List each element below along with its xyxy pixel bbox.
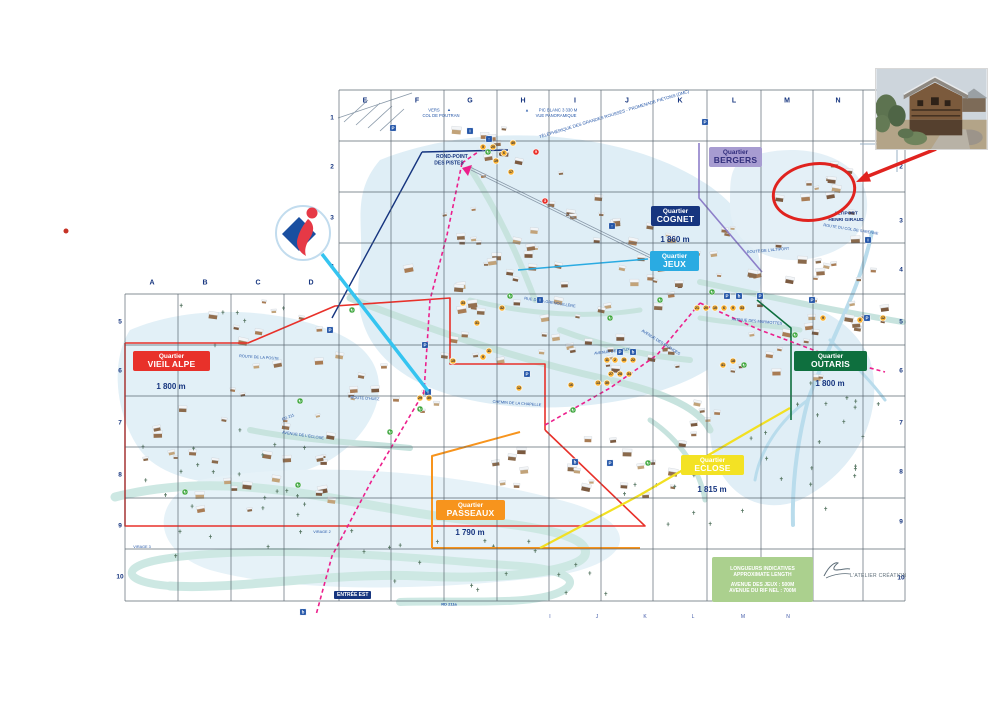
grid-letter: K xyxy=(677,98,682,105)
parking-icon: P xyxy=(757,293,763,299)
poi-marker: 13 xyxy=(595,380,601,386)
grid-number: 8 xyxy=(899,469,903,476)
recycling-icon: ↻ xyxy=(507,293,513,299)
grid-letter: J xyxy=(625,98,629,105)
map-text: b xyxy=(632,350,635,355)
map-text: P xyxy=(618,350,621,355)
grid-number: 6 xyxy=(118,368,122,375)
map-text: P xyxy=(608,461,611,466)
map-text: 32 xyxy=(500,306,504,310)
credit-bird-icon xyxy=(822,560,852,582)
parking-icon: P xyxy=(724,293,730,299)
bus-icon: b xyxy=(300,609,306,615)
place-label: VUE PANORAMIQUE xyxy=(536,113,577,118)
map-text: 12 xyxy=(517,386,521,390)
map-text: 11 xyxy=(487,349,491,353)
recycling-icon: ↻ xyxy=(657,297,663,303)
grid-number: 3 xyxy=(330,215,334,222)
grid-letter: N xyxy=(786,614,790,620)
place-label: PIC BLANC 3 330 M xyxy=(539,108,578,113)
poi-marker: 9 xyxy=(820,315,826,321)
place-label: VERS xyxy=(428,108,440,113)
poi-marker: 17 xyxy=(508,169,514,175)
quartier-name: COGNET xyxy=(653,215,698,224)
parking-icon: P xyxy=(702,119,708,125)
poi-marker: 5 xyxy=(480,144,486,150)
recycling-icon: ↻ xyxy=(792,332,798,338)
map-text: 21 xyxy=(695,306,699,310)
poi-marker: 28 xyxy=(617,371,623,377)
quartier-name: ECLOSE xyxy=(683,464,742,473)
quartier-label-bergers: QuartierBERGERS xyxy=(709,147,762,167)
map-text: 11 xyxy=(605,358,609,362)
poi-marker: 12 xyxy=(516,385,522,391)
parking-icon: P xyxy=(390,125,396,131)
grid-number: 7 xyxy=(899,420,903,427)
map-text: P xyxy=(703,120,706,125)
poi-marker: 30 xyxy=(426,395,432,401)
parking-icon: P xyxy=(524,371,530,377)
quartier-label-passeaux: QuartierPASSEAUX xyxy=(436,500,505,520)
quartier-label-vieil-alpe: QuartierVIEIL ALPE xyxy=(133,351,210,371)
quartier-altitude-eclose: 1 815 m xyxy=(672,485,752,494)
poi-marker: 31 xyxy=(474,320,480,326)
quartier-name: OUTARIS xyxy=(796,360,865,369)
grid-number: 10 xyxy=(116,574,124,581)
poi-marker: 18 xyxy=(730,358,736,364)
poi-marker: 9 xyxy=(730,305,736,311)
place-label: ▲ xyxy=(447,107,451,112)
info-icon: i xyxy=(865,237,871,243)
map-text: 2 xyxy=(614,358,616,362)
grid-number: 9 xyxy=(118,523,122,530)
parking-icon: P xyxy=(617,349,623,355)
poi-marker: 9 xyxy=(480,354,486,360)
map-text: 9 xyxy=(822,316,824,320)
place-label: ▲ xyxy=(525,108,529,113)
grid-letter: J xyxy=(596,614,599,620)
grid-letter: M xyxy=(784,98,790,105)
recycling-icon: ↻ xyxy=(387,429,393,435)
map-text: 27 xyxy=(609,372,613,376)
recycling-icon: ↻ xyxy=(570,407,576,413)
grid-letter: I xyxy=(574,98,576,105)
map-text: 15 xyxy=(451,359,455,363)
map-text: P xyxy=(525,372,528,377)
poi-marker: 2 xyxy=(612,357,618,363)
map-text: 29 xyxy=(418,396,422,400)
poi-marker: 20 xyxy=(490,144,496,150)
poi-marker: 34 xyxy=(626,371,632,377)
poi-marker: 32 xyxy=(499,305,505,311)
resort-map-page: EFGHIJKLMNABCDIJKLMN12345678910234567891… xyxy=(0,0,1000,707)
recycling-icon: ↻ xyxy=(645,460,651,466)
grid-letter: F xyxy=(415,98,420,105)
map-text: b xyxy=(302,610,305,615)
map-text: 33 xyxy=(461,301,465,305)
grid-number: 5 xyxy=(118,319,122,326)
map-text: 22 xyxy=(631,358,635,362)
bus-icon: b xyxy=(630,349,636,355)
map-text: 31 xyxy=(475,321,479,325)
map-text: 3 xyxy=(544,199,546,203)
chalet-photo xyxy=(875,68,988,150)
quartier-name: BERGERS xyxy=(711,156,760,165)
map-text: 41 xyxy=(721,363,725,367)
poi-marker: 33 xyxy=(739,305,745,311)
map-text: P xyxy=(391,126,394,131)
grid-letter: M xyxy=(741,614,745,620)
grid-letter: I xyxy=(549,614,550,620)
poi-marker: 22 xyxy=(630,357,636,363)
grid-number: 8 xyxy=(118,472,122,479)
map-text: 10 xyxy=(713,306,717,310)
grid-letter: D xyxy=(308,280,313,287)
grid-number: 3 xyxy=(899,218,903,225)
map-text: P xyxy=(328,328,331,333)
poi-marker: 12 xyxy=(880,315,886,321)
grid-letter: L xyxy=(692,614,695,620)
bus-icon: b xyxy=(572,459,578,465)
poi-marker: 20 xyxy=(703,305,709,311)
place-label: COL DE POUTRAN xyxy=(422,113,459,118)
recycling-icon: ↻ xyxy=(607,315,613,321)
place-label: ROND-POINT xyxy=(436,154,468,160)
grid-number: 2 xyxy=(330,164,334,171)
place-label: DES PISTES xyxy=(434,161,464,167)
recycling-icon: ↻ xyxy=(417,406,423,412)
map-text: 13 xyxy=(596,381,600,385)
grid-number: 9 xyxy=(899,519,903,526)
map-text: 9 xyxy=(535,150,537,154)
place-label: HENRI GIRAUD xyxy=(828,217,864,223)
parking-icon: P xyxy=(809,297,815,303)
place-label: VIRAGE 3 xyxy=(133,545,151,549)
legend-line: AVENUE DU RIF NEL : 700M xyxy=(712,588,813,594)
poi-marker: 40 xyxy=(510,140,516,146)
map-text: P xyxy=(758,294,761,299)
recycling-icon: ↻ xyxy=(741,362,747,368)
credit-text: L'ATELIER CRÉATION xyxy=(850,573,906,579)
map-text: ↑ xyxy=(611,224,613,229)
grid-letter: B xyxy=(202,280,207,287)
grid-letter: N xyxy=(835,98,840,105)
poi-marker: 6 xyxy=(721,305,727,311)
quartier-name: VIEIL ALPE xyxy=(135,360,208,369)
poi-marker: 33 xyxy=(460,300,466,306)
map-text: 18 xyxy=(731,359,735,363)
quartier-name: JEUX xyxy=(652,260,697,269)
grid-number: 5 xyxy=(899,319,903,326)
grid-letter: H xyxy=(520,98,525,105)
quartier-label-eclose: QuartierECLOSE xyxy=(681,455,744,475)
map-credit: L'ATELIER CRÉATION xyxy=(822,560,914,592)
grid-letter: A xyxy=(149,280,154,287)
poi-marker: 30 xyxy=(621,357,627,363)
poi-marker: 21 xyxy=(694,305,700,311)
poi-marker: 3 xyxy=(542,198,548,204)
bus-icon: b xyxy=(736,293,742,299)
lift-icon: ↑ xyxy=(609,223,615,229)
poi-marker: 15 xyxy=(450,358,456,364)
recycling-icon: ↻ xyxy=(709,289,715,295)
red-arrow-annotation xyxy=(856,149,936,182)
map-text: 16 xyxy=(569,383,573,387)
map-text: 34 xyxy=(627,372,631,376)
map-text: 30 xyxy=(427,396,431,400)
map-text: 6 xyxy=(723,306,725,310)
poi-marker: 9 xyxy=(533,149,539,155)
grid-number: 4 xyxy=(899,267,903,274)
poi-marker: 19 xyxy=(493,158,499,164)
parking-icon: P xyxy=(327,327,333,333)
quartier-label-cognet: QuartierCOGNET xyxy=(651,206,700,226)
quartier-label-outaris: QuartierOUTARIS xyxy=(794,351,867,371)
poi-marker: 41 xyxy=(720,362,726,368)
place-label: RD 211a xyxy=(441,602,457,607)
poi-marker: 10 xyxy=(712,305,718,311)
grid-letter: K xyxy=(643,614,647,620)
map-text: b xyxy=(574,460,577,465)
grid-number: 6 xyxy=(899,368,903,375)
parking-icon: P xyxy=(422,342,428,348)
map-text: 28 xyxy=(618,372,622,376)
map-text: 5 xyxy=(482,145,484,149)
map-text: ↑ xyxy=(488,137,490,142)
grid-letter: L xyxy=(732,98,737,105)
poi-marker: 27 xyxy=(608,371,614,377)
map-text: 33 xyxy=(740,306,744,310)
recycling-icon: ↻ xyxy=(297,398,303,404)
map-text: 17 xyxy=(509,170,513,174)
map-text: 9 xyxy=(482,355,484,359)
place-label: VIRAGE 2 xyxy=(313,530,331,534)
quartier-label-jeux: QuartierJEUX xyxy=(650,251,699,271)
map-text: 19 xyxy=(494,159,498,163)
poi-marker: 30 xyxy=(604,380,610,386)
map-text: 30 xyxy=(622,358,626,362)
poi-marker: 8 xyxy=(857,317,863,323)
quartier-altitude-cognet: 1 860 m xyxy=(635,235,715,244)
legend-box: LONGUEURS INDICATIVES APPROXIMATE LENGTH… xyxy=(712,557,813,602)
map-text: 12 xyxy=(881,316,885,320)
map-text: 40 xyxy=(511,141,515,145)
info-icon: i xyxy=(467,128,473,134)
recycling-icon: ↻ xyxy=(485,149,491,155)
map-text: i xyxy=(539,298,540,303)
map-text: P xyxy=(725,294,728,299)
lift-icon: ↑ xyxy=(486,136,492,142)
quartier-altitude-vieil-alpe: 1 800 m xyxy=(131,382,211,391)
map-text: P xyxy=(865,316,868,321)
entree-est-label: ENTRÉE EST xyxy=(334,591,371,599)
map-text: 9 xyxy=(732,306,734,310)
map-text: P xyxy=(810,298,813,303)
poi-marker: 6 xyxy=(501,150,507,156)
red-dot-annotation xyxy=(64,229,69,234)
quartier-altitude-outaris: 1 800 m xyxy=(790,379,870,388)
map-text: 8 xyxy=(859,318,861,322)
map-text: 6 xyxy=(503,151,505,155)
recycling-icon: ↻ xyxy=(295,482,301,488)
recycling-icon: ↻ xyxy=(349,307,355,313)
poi-marker: 16 xyxy=(568,382,574,388)
info-icon: i xyxy=(537,297,543,303)
poi-marker: 11 xyxy=(604,357,610,363)
quartier-name: PASSEAUX xyxy=(438,509,503,518)
map-text: 30 xyxy=(605,381,609,385)
grid-letter: C xyxy=(255,280,260,287)
grid-number: 7 xyxy=(118,420,122,427)
map-text: i xyxy=(469,129,470,134)
recycling-icon: ↻ xyxy=(182,489,188,495)
parking-icon: P xyxy=(607,460,613,466)
grid-number: 1 xyxy=(330,115,334,122)
parking-icon: P xyxy=(864,315,870,321)
map-text: 20 xyxy=(491,145,495,149)
grid-letter: E xyxy=(363,98,368,105)
map-text: b xyxy=(738,294,741,299)
poi-marker: 11 xyxy=(486,348,492,354)
map-text: 20 xyxy=(704,306,708,310)
map-text: i xyxy=(867,238,868,243)
tourism-office-logo-icon xyxy=(276,206,330,260)
map-text: P xyxy=(423,343,426,348)
quartier-altitude-passeaux: 1 790 m xyxy=(430,528,510,537)
poi-marker: 29 xyxy=(417,395,423,401)
grid-letter: G xyxy=(467,98,473,105)
